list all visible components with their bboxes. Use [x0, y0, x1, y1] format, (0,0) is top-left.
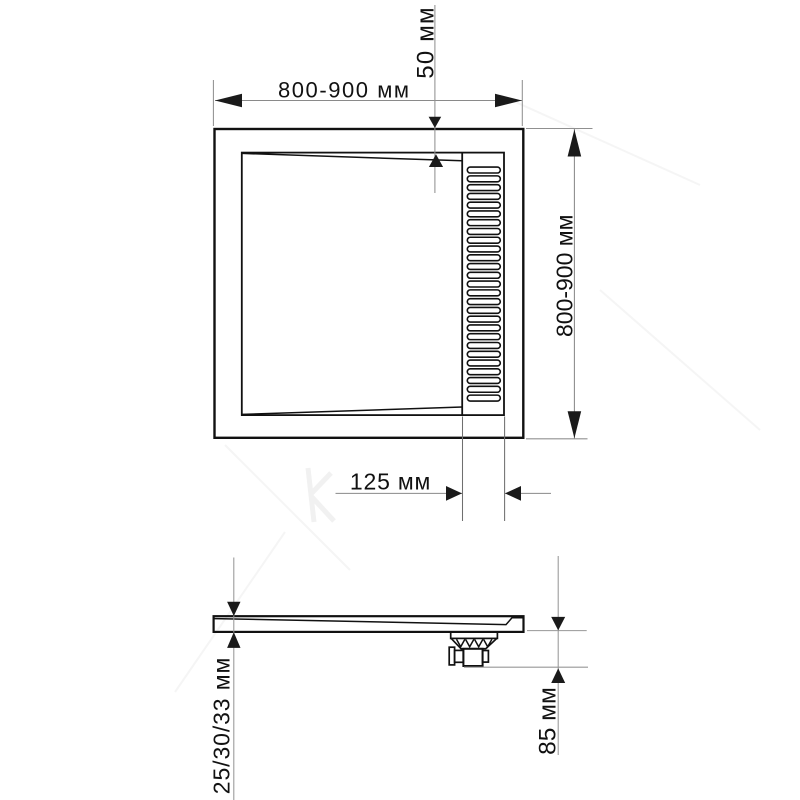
svg-text:125 мм: 125 мм [350, 468, 431, 494]
svg-text:25/30/33 мм: 25/30/33 мм [209, 657, 235, 794]
svg-text:85 мм: 85 мм [535, 687, 562, 755]
svg-text:800-900 мм: 800-900 мм [278, 78, 411, 103]
svg-text:800-900 мм: 800-900 мм [552, 215, 578, 337]
svg-text:50 мм: 50 мм [413, 6, 440, 78]
